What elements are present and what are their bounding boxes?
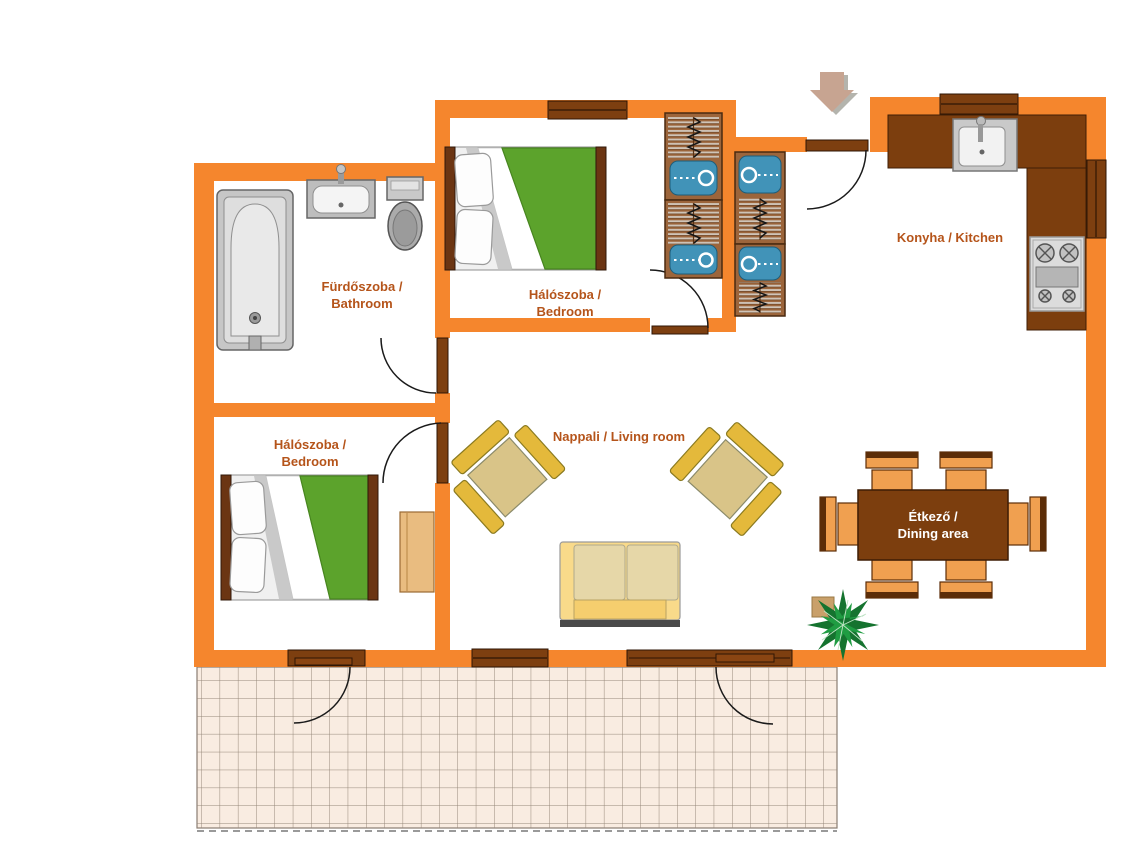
dining-set: [820, 452, 1046, 598]
stove-icon: [1030, 237, 1084, 311]
toilet-icon: [387, 177, 423, 250]
dining-chair: [940, 452, 992, 490]
wardrobe-cabinet: [665, 113, 722, 200]
wardrobe-cabinet: [665, 200, 722, 278]
bedroom-top-door: [650, 270, 708, 334]
wall-center-vertical-mid: [435, 393, 450, 423]
wall-center-vertical-lower: [435, 483, 450, 667]
dining-chair: [820, 497, 858, 551]
dining-chair: [1008, 497, 1046, 551]
bedroom-top-label-line2: Bedroom: [536, 304, 593, 319]
window-kitchen-top: [940, 94, 1018, 114]
bed-left-icon: [221, 475, 378, 600]
window-living-bottom: [472, 649, 548, 667]
terrace-tile-grid: [197, 667, 837, 828]
pillow: [230, 537, 267, 593]
dresser-icon: [400, 512, 434, 592]
sofa-icon: [560, 542, 680, 627]
bathroom-label-line2: Bathroom: [331, 296, 392, 311]
bathroom-fixtures: [217, 165, 423, 351]
armchair-icon: [438, 408, 566, 535]
dining-chair: [866, 452, 918, 490]
bedroom-left-door: [383, 423, 448, 483]
wall-bedroom-bottom-left: [435, 318, 650, 332]
armchair-icon: [669, 410, 797, 537]
kitchen-fixtures: [888, 115, 1086, 330]
bathtub-faucet: [249, 336, 261, 350]
dining-chair: [940, 560, 992, 598]
sink-faucet: [978, 124, 983, 142]
entry-door: [806, 140, 868, 209]
bed-footboard: [368, 475, 378, 600]
pillow: [229, 481, 267, 535]
dining-table: [858, 490, 1008, 560]
bed-footboard: [596, 147, 606, 270]
wardrobe-cabinet: [735, 244, 785, 316]
bedroom-left-label-line1: Hálószoba /: [274, 437, 347, 452]
window-bedroom-top: [548, 101, 627, 119]
wall-hall-top: [736, 137, 807, 152]
pillow: [454, 153, 494, 207]
kitchen-label: Konyha / Kitchen: [897, 230, 1003, 245]
pillow: [455, 209, 494, 265]
bathroom-door: [381, 338, 448, 393]
kitchen-sink-icon: [953, 117, 1017, 172]
window-kitchen-right: [1087, 160, 1106, 238]
wall-bedroom-right: [722, 100, 736, 332]
dining-chair: [866, 560, 918, 598]
terrace: [197, 667, 837, 831]
bed-top-icon: [445, 147, 606, 270]
dining-label-line1: Étkező /: [908, 509, 958, 524]
bed-headboard: [445, 147, 455, 270]
entry-arrow-icon: [810, 72, 858, 115]
wall-divider-bath-bedroom: [194, 403, 435, 417]
dining-label-line2: Dining area: [898, 526, 970, 541]
floor-plan-svg: Fürdőszoba / Bathroom Hálószoba / Bedroo…: [0, 0, 1145, 848]
wardrobe-cabinet: [735, 152, 785, 244]
bathroom-label-line1: Fürdőszoba /: [322, 279, 403, 294]
bathtub-icon: [217, 190, 293, 350]
sofa-base: [560, 620, 680, 627]
bedroom-top-label-line1: Hálószoba /: [529, 287, 602, 302]
bedroom-left-label-line2: Bedroom: [281, 454, 338, 469]
floor-plan-canvas: Fürdőszoba / Bathroom Hálószoba / Bedroo…: [0, 0, 1145, 848]
wall-bedroom-bottom-right: [708, 318, 736, 332]
living-room-label: Nappali / Living room: [553, 429, 685, 444]
